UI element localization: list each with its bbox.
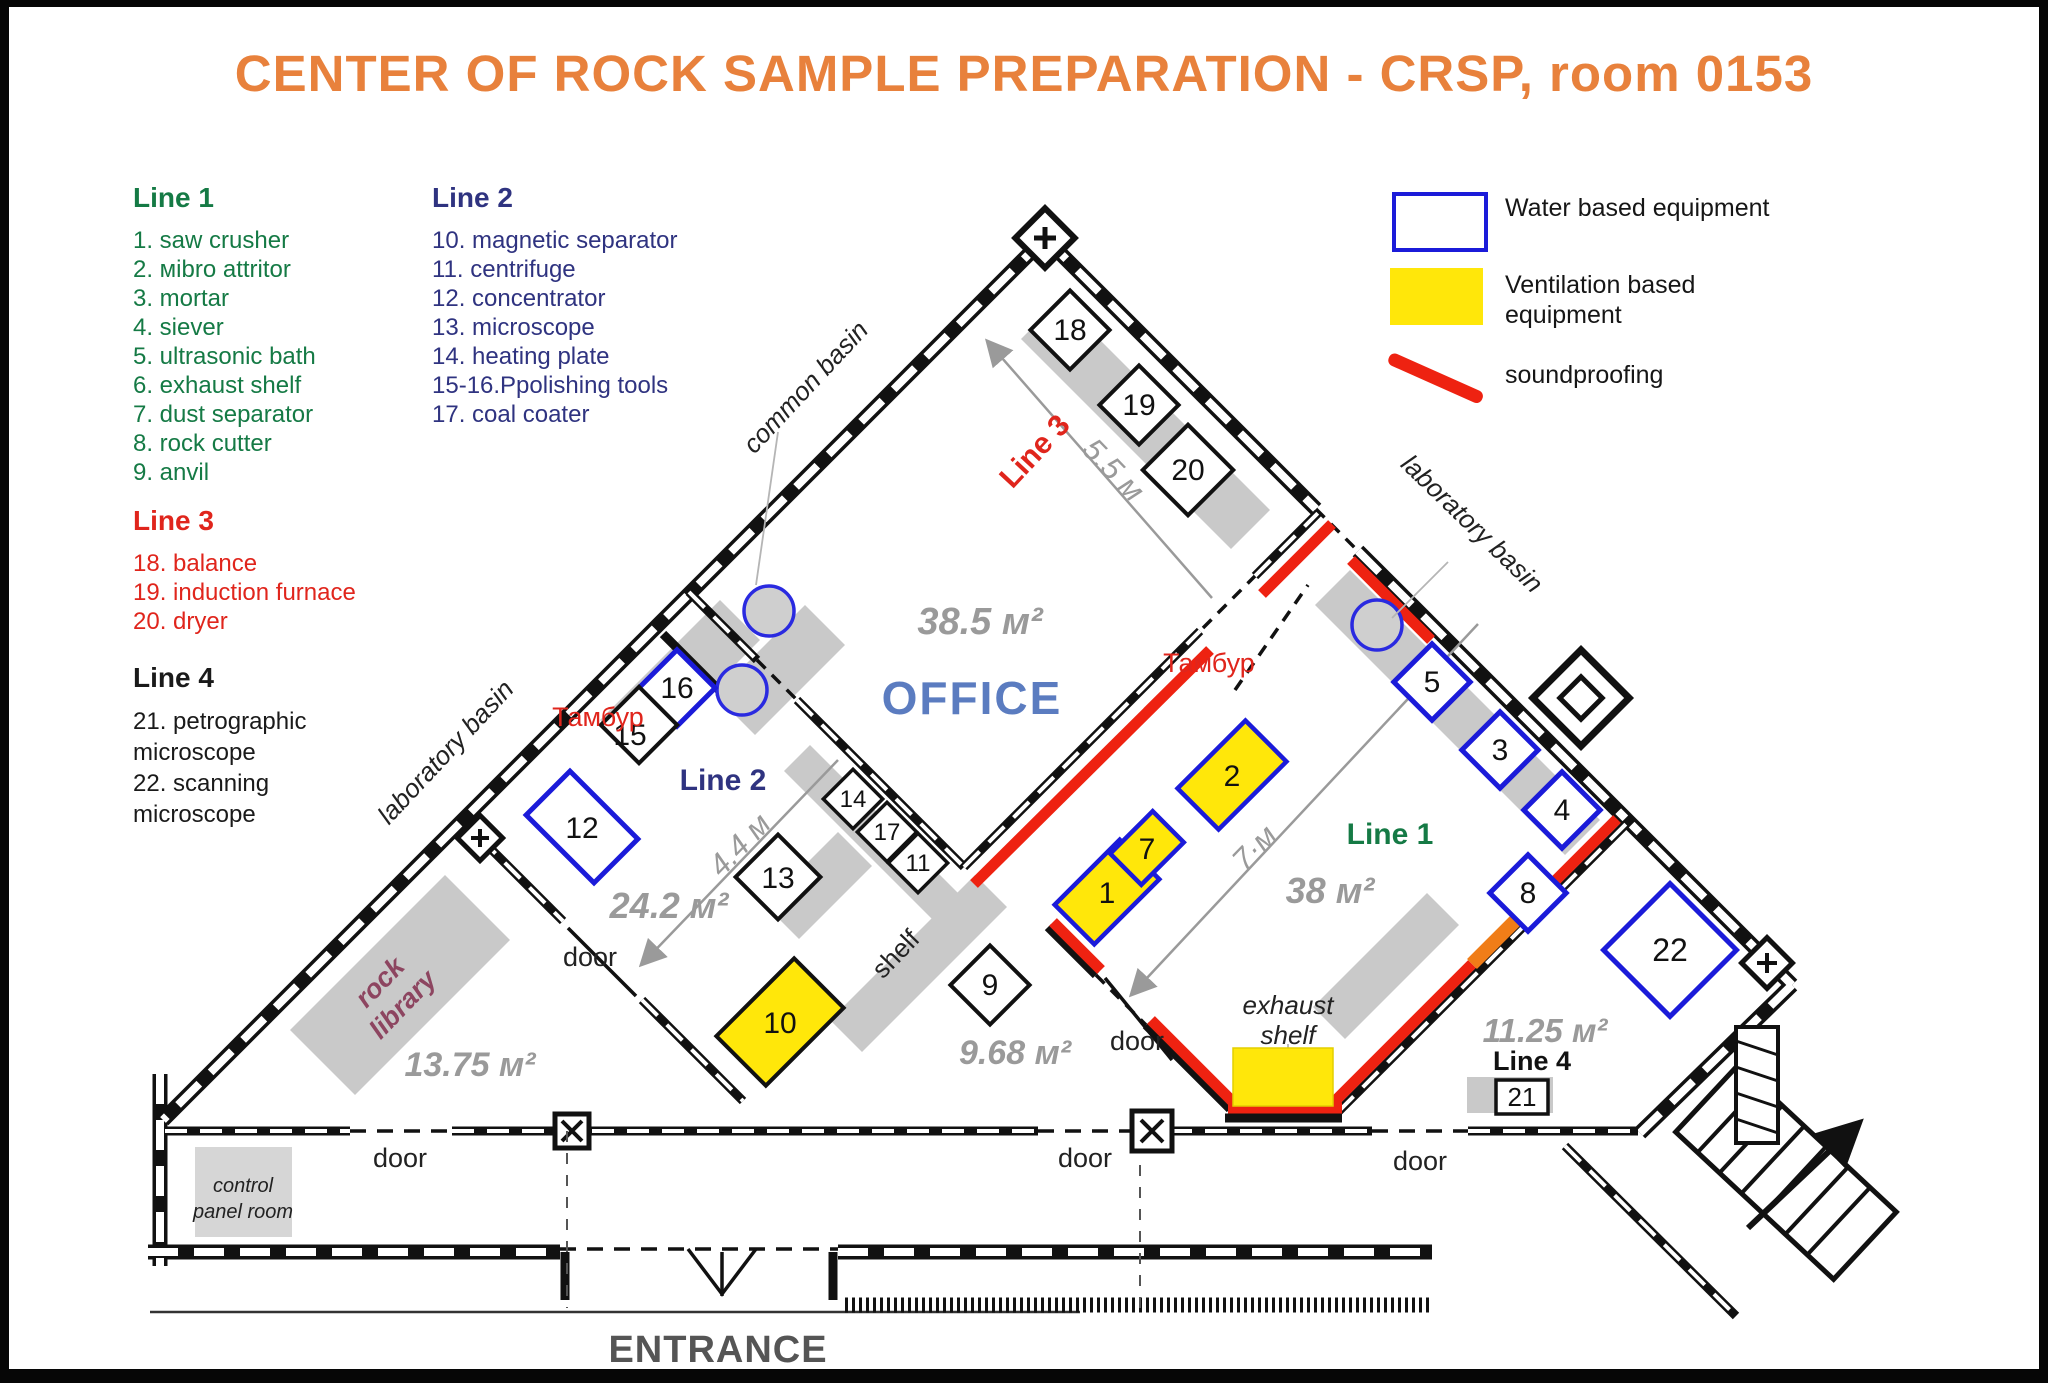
water-equipment-swatch bbox=[1392, 192, 1488, 252]
soundproofing-label: soundproofing bbox=[1505, 360, 1663, 390]
laboratory-basin-left-label: laboratory basin bbox=[371, 674, 519, 830]
legend-item: 7. dust separator bbox=[133, 400, 316, 429]
office-label: OFFICE bbox=[882, 672, 1063, 724]
legend-item: 1. saw crusher bbox=[133, 226, 316, 255]
equip-box-label: 18 bbox=[1053, 314, 1086, 347]
basin-circle bbox=[717, 665, 767, 715]
counter-bands bbox=[195, 300, 1600, 1237]
legend-item: 6. exhaust shelf bbox=[133, 371, 316, 400]
equip-box-label: 7 bbox=[1139, 833, 1156, 866]
exhaust-shelf-label-line1: exhaust bbox=[1242, 990, 1335, 1020]
control-panel-line1: control bbox=[213, 1175, 274, 1197]
equip-box-label: 16 bbox=[660, 672, 693, 705]
legend-item: 15-16.Ppolishing tools bbox=[432, 371, 677, 400]
legend-item: 8. rock cutter bbox=[133, 429, 316, 458]
legend-item: 14. heating plate bbox=[432, 342, 677, 371]
office-area-label: 38.5 м² bbox=[917, 601, 1044, 643]
equip-box-label: 9 bbox=[982, 969, 999, 1002]
line1-area-label: 38 м² bbox=[1286, 870, 1376, 911]
line4-label: Line 4 bbox=[1493, 1046, 1571, 1076]
tambur-right-label: Тамбур bbox=[1163, 648, 1255, 678]
equip-box-label: 4 bbox=[1554, 794, 1571, 827]
entrance-marks bbox=[150, 1131, 1432, 1318]
rock-area-label: 13.75 м² bbox=[404, 1046, 537, 1084]
equip-box-label: 5 bbox=[1424, 666, 1441, 699]
equip-box-label: 8 bbox=[1520, 877, 1537, 910]
water-equipment-label: Water based equipment bbox=[1505, 193, 1770, 223]
legend-item: 11. centrifuge bbox=[432, 255, 677, 284]
basin-circle bbox=[744, 586, 794, 636]
equip-box-label: 14 bbox=[840, 786, 867, 813]
legend-item: 13. microscope bbox=[432, 313, 677, 342]
equip-box-label: 11 bbox=[906, 850, 931, 877]
legend-item: 12. concentrator bbox=[432, 284, 677, 313]
legend-item: 4. siever bbox=[133, 313, 316, 342]
equip-box-8: 8 bbox=[1490, 855, 1566, 931]
line1-label: Line 1 bbox=[1347, 818, 1434, 851]
page-title: CENTER OF ROCK SAMPLE PREPARATION - CRSP… bbox=[0, 44, 2048, 103]
legend-line4-header: Line 4 bbox=[133, 662, 306, 694]
line4-area-label: 11.25 м² bbox=[1483, 1012, 1609, 1049]
legend-line2-header: Line 2 bbox=[432, 182, 677, 214]
equip-box-label: 3 bbox=[1492, 734, 1509, 767]
door-label: door bbox=[1058, 1143, 1112, 1173]
door-label: door bbox=[563, 942, 617, 972]
line2-label: Line 2 bbox=[680, 764, 767, 797]
legend-line3: Line 3 18. balance 19. induction furnace… bbox=[133, 505, 356, 636]
exhaust-shelf-label: exhaust shelf bbox=[1242, 990, 1335, 1050]
legend-item: 17. coal coater bbox=[432, 400, 677, 429]
equip-box-label: 21 bbox=[1508, 1082, 1537, 1112]
equip-box-label: 19 bbox=[1122, 389, 1155, 422]
legend-item: microscope bbox=[133, 737, 306, 768]
legend-item: 19. induction furnace bbox=[133, 578, 356, 607]
legend-line3-header: Line 3 bbox=[133, 505, 356, 537]
equip-box-10: 10 bbox=[716, 958, 843, 1085]
legend-item: 21. petrographic bbox=[133, 706, 306, 737]
line3-label: Line 3 bbox=[993, 409, 1076, 495]
legend-item: 5. ultrasonic bath bbox=[133, 342, 316, 371]
mid-area-label: 9.68 м² bbox=[959, 1034, 1073, 1072]
floor-plan-page: { "title": "CENTER OF ROCK SAMPLE PREPAR… bbox=[0, 0, 2048, 1383]
equip-box-21: 21 bbox=[1496, 1080, 1548, 1114]
equip-box-label: 22 bbox=[1652, 932, 1688, 968]
tambur-left-label: Тамбур bbox=[552, 702, 644, 732]
equip-box-2: 2 bbox=[1178, 721, 1287, 830]
equip-box-9: 9 bbox=[950, 945, 1029, 1024]
laboratory-basin-right-label: laboratory basin bbox=[1395, 448, 1549, 598]
legend-line1: Line 1 1. saw crusher 2. мibro attritor … bbox=[133, 182, 316, 487]
ventilation-label-line2: equipment bbox=[1505, 300, 1695, 330]
ventilation-equipment-swatch bbox=[1390, 268, 1483, 325]
equip-box-label: 13 bbox=[761, 862, 794, 895]
legend-line1-header: Line 1 bbox=[133, 182, 316, 214]
exhaust-shelf-rect bbox=[1233, 1048, 1333, 1106]
equip-box-label: 2 bbox=[1224, 760, 1241, 793]
legend-item: 9. anvil bbox=[133, 458, 316, 487]
entrance-label: ENTRANCE bbox=[608, 1329, 827, 1371]
legend-item: 10. magnetic separator bbox=[432, 226, 677, 255]
legend-item: microscope bbox=[133, 799, 306, 830]
control-panel-line2: panel room bbox=[192, 1201, 293, 1223]
door-label: door bbox=[1110, 1026, 1164, 1056]
legend-line2: Line 2 10. magnetic separator 11. centri… bbox=[432, 182, 677, 429]
legend-item: 22. scanning bbox=[133, 768, 306, 799]
ventilation-label-line1: Ventilation based bbox=[1505, 270, 1695, 300]
equip-box-label: 1 bbox=[1099, 877, 1116, 910]
ventilation-equipment-label: Ventilation based equipment bbox=[1505, 270, 1695, 330]
door-label: door bbox=[1393, 1146, 1447, 1176]
legend-item: 2. мibro attritor bbox=[133, 255, 316, 284]
door-label: door bbox=[373, 1143, 427, 1173]
equip-box-label: 10 bbox=[763, 1007, 796, 1040]
dim-7m: 7·м bbox=[1225, 818, 1284, 877]
equip-box-label: 20 bbox=[1171, 454, 1204, 487]
equip-box-12: 12 bbox=[526, 771, 638, 883]
legend-line4: Line 4 21. petrographic microscope 22. s… bbox=[133, 662, 306, 830]
equip-box-label: 17 bbox=[874, 819, 901, 846]
legend-item: 3. mortar bbox=[133, 284, 316, 313]
line2-area-label: 24.2 м² bbox=[609, 885, 730, 926]
legend-item: 20. dryer bbox=[133, 607, 356, 636]
legend-item: 18. balance bbox=[133, 549, 356, 578]
basin-circle bbox=[1352, 600, 1402, 650]
exhaust-shelf-label-line2: shelf bbox=[1261, 1020, 1319, 1050]
equip-box-label: 12 bbox=[565, 812, 598, 845]
